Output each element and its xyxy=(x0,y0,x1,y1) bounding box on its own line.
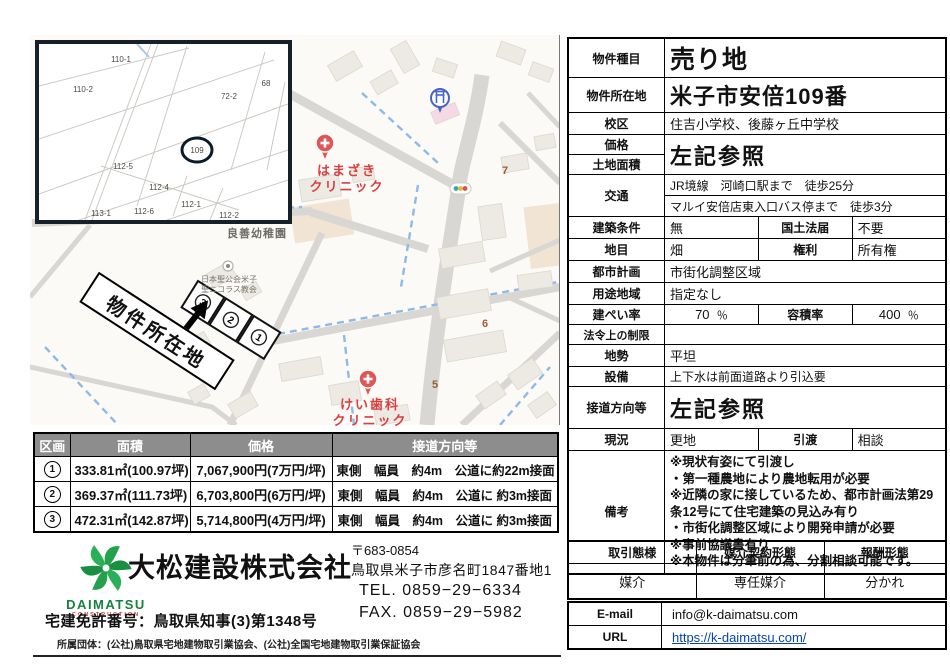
deal-header-contract: 媒介契約形態 xyxy=(696,541,824,564)
spec-value-building-cond: 無 xyxy=(665,217,759,239)
spec-value-transport-1: JR境線 河崎口駅まで 徒歩25分 xyxy=(665,175,947,196)
spec-label-price: 価格 xyxy=(568,135,665,155)
deal-header-type: 取引態様 xyxy=(568,541,696,564)
lot-table-header-row: 区画 面積 価格 接道方向等 xyxy=(34,433,558,457)
col-header-area: 面積 xyxy=(70,433,190,457)
table-row: 1 333.81㎡(100.97坪) 7,067,900円(7万円/坪) 東側 … xyxy=(34,457,558,482)
spec-value-rights: 所有権 xyxy=(852,239,946,261)
remark-line: ※近隣の家に接しているため、都市計画法第29条12号にて住宅建築の見込み有り xyxy=(670,487,940,520)
lot-road: 東側 幅員 約4m 公道に 約3m接面 xyxy=(332,482,558,507)
company-address: 鳥取県米子市彦名町1847番地1 xyxy=(351,562,561,578)
route-7-label: 7 xyxy=(502,165,508,177)
table-row: 建ぺい率 70 ％ 容積率 400 ％ xyxy=(568,305,946,325)
table-row: 都市計画 市街化調整区域 xyxy=(568,261,946,283)
remark-line: ・市街化調整区域により開発申請が必要 xyxy=(670,520,940,537)
table-row: 3 472.31㎡(142.87坪) 5,714,800円(4万円/坪) 東側 … xyxy=(34,507,558,533)
lot-number-badge: 1 xyxy=(44,461,61,478)
hamazaki-line1: はまざき xyxy=(292,163,402,179)
lot-road: 東側 幅員 約4m 公道に約22m接面 xyxy=(332,457,558,482)
parcel-112-1: 112-1 xyxy=(181,200,201,209)
kei-line1: けい歯科 xyxy=(315,397,425,413)
spec-label-far: 容積率 xyxy=(758,305,852,325)
inset-canvas: 110-1 110-2 72-2 68 109 112-5 112-4 112-… xyxy=(39,44,288,220)
far-unit: ％ xyxy=(908,310,919,322)
parcel-112-6: 112-6 xyxy=(134,207,154,216)
table-row: 建築条件 無 国土法届 不要 xyxy=(568,217,946,239)
table-row: 取引態様 媒介契約形態 報酬形態 xyxy=(568,541,946,564)
remark-line: ※現状有姿にて引渡し xyxy=(670,454,940,471)
spec-label-utilities: 設備 xyxy=(568,367,665,387)
spec-label-building-cond: 建築条件 xyxy=(568,217,665,239)
company-name: 大松建設株式会社 xyxy=(128,546,352,585)
parcel-68: 68 xyxy=(262,79,271,88)
company-tel: TEL. 0859−29−6334 xyxy=(351,582,561,600)
spec-value-utilities: 上下水は前面道路より引込要 xyxy=(665,367,947,387)
route-6-label: 6 xyxy=(482,318,488,330)
spec-label-city-plan: 都市計画 xyxy=(568,261,665,283)
col-header-road: 接道方向等 xyxy=(332,433,558,457)
flyer-page: 3 2 1 xyxy=(0,0,950,671)
spec-value-current: 更地 xyxy=(665,429,759,451)
lot-price: 6,703,800円(6万円/坪) xyxy=(190,482,332,507)
lot-price: 5,714,800円(4万円/坪) xyxy=(190,507,332,533)
parcel-110-1: 110-1 xyxy=(111,55,131,64)
table-row: 媒介 専任媒介 分かれ xyxy=(568,564,946,600)
bcr-unit: ％ xyxy=(717,310,728,322)
table-row: 用途地域 指定なし xyxy=(568,283,946,305)
table-row: 現況 更地 引渡 相談 xyxy=(568,429,946,451)
hamazaki-line2: クリニック xyxy=(292,179,402,195)
table-row: 法令上の制限 xyxy=(568,325,946,345)
table-row: 校区 住吉小学校、後藤ヶ丘中学校 xyxy=(568,113,946,135)
spec-label-bcr: 建ぺい率 xyxy=(568,305,665,325)
col-header-price: 価格 xyxy=(190,433,332,457)
spec-label-national-land: 国土法届 xyxy=(758,217,852,239)
hamazaki-clinic-label: はまざき クリニック xyxy=(292,163,402,196)
transaction-table: 取引態様 媒介契約形態 報酬形態 媒介 専任媒介 分かれ xyxy=(567,540,947,600)
parcel-112-4: 112-4 xyxy=(149,183,169,192)
email-label: E-mail xyxy=(568,602,662,626)
spec-label-current: 現況 xyxy=(568,429,665,451)
table-row: 接道方向等 左記参照 xyxy=(568,387,946,429)
parcel-112-2: 112-2 xyxy=(219,211,239,220)
spec-label-location: 物件所在地 xyxy=(568,78,665,113)
table-row: 地勢 平坦 xyxy=(568,345,946,367)
table-row: 物件所在地 米子市安倍109番 xyxy=(568,78,946,113)
spec-value-legal xyxy=(665,325,947,345)
spec-value-type: 売り地 xyxy=(665,38,947,78)
parcel-109: 109 xyxy=(190,146,204,155)
url-label: URL xyxy=(568,626,662,650)
table-row: E-mail info@k-daimatsu.com xyxy=(568,602,946,626)
route-5-label: 5 xyxy=(432,379,438,391)
spec-value-terrain: 平坦 xyxy=(665,345,947,367)
spec-value-bcr: 70 ％ xyxy=(665,305,759,325)
spec-value-location: 米子市安倍109番 xyxy=(665,78,947,113)
church-label: 日本聖公会米子 聖ニコラス教会 xyxy=(192,275,266,294)
church-line1: 日本聖公会米子 xyxy=(192,275,266,285)
lot-number-badge: 3 xyxy=(44,511,61,528)
location-map: 3 2 1 xyxy=(30,35,560,425)
church-line2: 聖ニコラス教会 xyxy=(192,285,266,295)
email-value: info@k-daimatsu.com xyxy=(662,602,947,626)
parcel-72-2: 72-2 xyxy=(221,92,238,101)
table-row: 地目 畑 権利 所有権 xyxy=(568,239,946,261)
parcel-113-1: 113-1 xyxy=(91,209,111,218)
cadastral-inset-map: 110-1 110-2 72-2 68 109 112-5 112-4 112-… xyxy=(35,40,292,224)
parcel-110-2: 110-2 xyxy=(73,85,93,94)
company-associations: 所属団体：(公社)鳥取県宅地建物取引業協会、(公社)全国宅地建物取引業保証協会 xyxy=(57,636,420,651)
traffic-light-icon xyxy=(450,183,471,194)
spec-label-land-cat: 地目 xyxy=(568,239,665,261)
lot-road: 東側 幅員 約4m 公道に 約3m接面 xyxy=(332,507,558,533)
website-link[interactable]: https://k-daimatsu.com/ xyxy=(672,630,806,645)
lot-area: 472.31㎡(142.87坪) xyxy=(70,507,190,533)
spec-label-road-dir: 接道方向等 xyxy=(568,387,665,429)
spec-label-terrain: 地勢 xyxy=(568,345,665,367)
lot-number-badge: 2 xyxy=(44,486,61,503)
kindergarten-label: 良善幼稚園 xyxy=(227,225,287,241)
table-row: 交通 JR境線 河崎口駅まで 徒歩25分 xyxy=(568,175,946,196)
lot-price-table: 区画 面積 価格 接道方向等 1 333.81㎡(100.97坪) 7,067,… xyxy=(33,432,559,533)
table-row: 価格 左記参照 xyxy=(568,135,946,155)
bcr-number: 70 xyxy=(695,307,709,322)
spec-label-use-district: 用途地域 xyxy=(568,283,665,305)
spec-value-land-cat: 畑 xyxy=(665,239,759,261)
deal-header-fee: 報酬形態 xyxy=(824,541,946,564)
spec-label-handover: 引渡 xyxy=(758,429,852,451)
spec-value-road-dir: 左記参照 xyxy=(665,387,947,429)
spec-value-handover: 相談 xyxy=(852,429,946,451)
map-right-border xyxy=(559,35,560,425)
remark-line: ・第一種農地により農地転用が必要 xyxy=(670,471,940,488)
daimatsu-logo-icon xyxy=(79,542,133,594)
spec-label-transport: 交通 xyxy=(568,175,665,217)
spec-label-type: 物件種目 xyxy=(568,38,665,78)
spec-label-legal: 法令上の制限 xyxy=(568,325,665,345)
table-row: 物件種目 売り地 xyxy=(568,38,946,78)
spec-value-national-land: 不要 xyxy=(852,217,946,239)
lot-price: 7,067,900円(7万円/坪) xyxy=(190,457,332,482)
lot-area: 333.81㎡(100.97坪) xyxy=(70,457,190,482)
table-row: URL https://k-daimatsu.com/ xyxy=(568,626,946,650)
spec-label-land-area: 土地面積 xyxy=(568,155,665,175)
far-number: 400 xyxy=(879,307,901,322)
deal-value-fee: 分かれ xyxy=(824,564,946,600)
company-fax: FAX. 0859−29−5982 xyxy=(351,604,561,622)
spec-label-school: 校区 xyxy=(568,113,665,135)
deal-value-contract: 専任媒介 xyxy=(696,564,824,600)
lot-area: 369.37㎡(111.73坪) xyxy=(70,482,190,507)
company-license: 宅建免許番号：鳥取県知事(3)第1348号 xyxy=(45,610,317,631)
col-header-lot: 区画 xyxy=(34,433,70,457)
church-icon xyxy=(223,261,233,271)
spec-value-school: 住吉小学校、後藤ヶ丘中学校 xyxy=(665,113,947,135)
company-address-block: 〒683-0854 鳥取県米子市彦名町1847番地1 TEL. 0859−29−… xyxy=(351,544,561,623)
spec-label-rights: 権利 xyxy=(758,239,852,261)
company-zip: 〒683-0854 xyxy=(351,544,561,559)
kei-line2: クリニック xyxy=(315,413,425,429)
property-spec-table: 物件種目 売り地 物件所在地 米子市安倍109番 校区 住吉小学校、後藤ヶ丘中学… xyxy=(567,37,947,575)
spec-value-price: 左記参照 xyxy=(665,135,947,175)
spec-value-use-district: 指定なし xyxy=(665,283,947,305)
kei-dental-label: けい歯科 クリニック xyxy=(315,397,425,430)
company-footer: DAIMATSU CONSTRUCTION 大松建設株式会社 〒683-0854… xyxy=(33,538,561,657)
deal-value-type: 媒介 xyxy=(568,564,696,600)
contact-table: E-mail info@k-daimatsu.com URL https://k… xyxy=(567,601,947,650)
spec-value-transport-2: マルイ安倍店東入口バス停まで 徒歩3分 xyxy=(665,196,947,217)
table-row: 設備 上下水は前面道路より引込要 xyxy=(568,367,946,387)
spec-value-city-plan: 市街化調整区域 xyxy=(665,261,947,283)
spec-value-far: 400 ％ xyxy=(852,305,946,325)
parcel-112-5: 112-5 xyxy=(113,162,133,171)
table-row: 2 369.37㎡(111.73坪) 6,703,800円(6万円/坪) 東側 … xyxy=(34,482,558,507)
